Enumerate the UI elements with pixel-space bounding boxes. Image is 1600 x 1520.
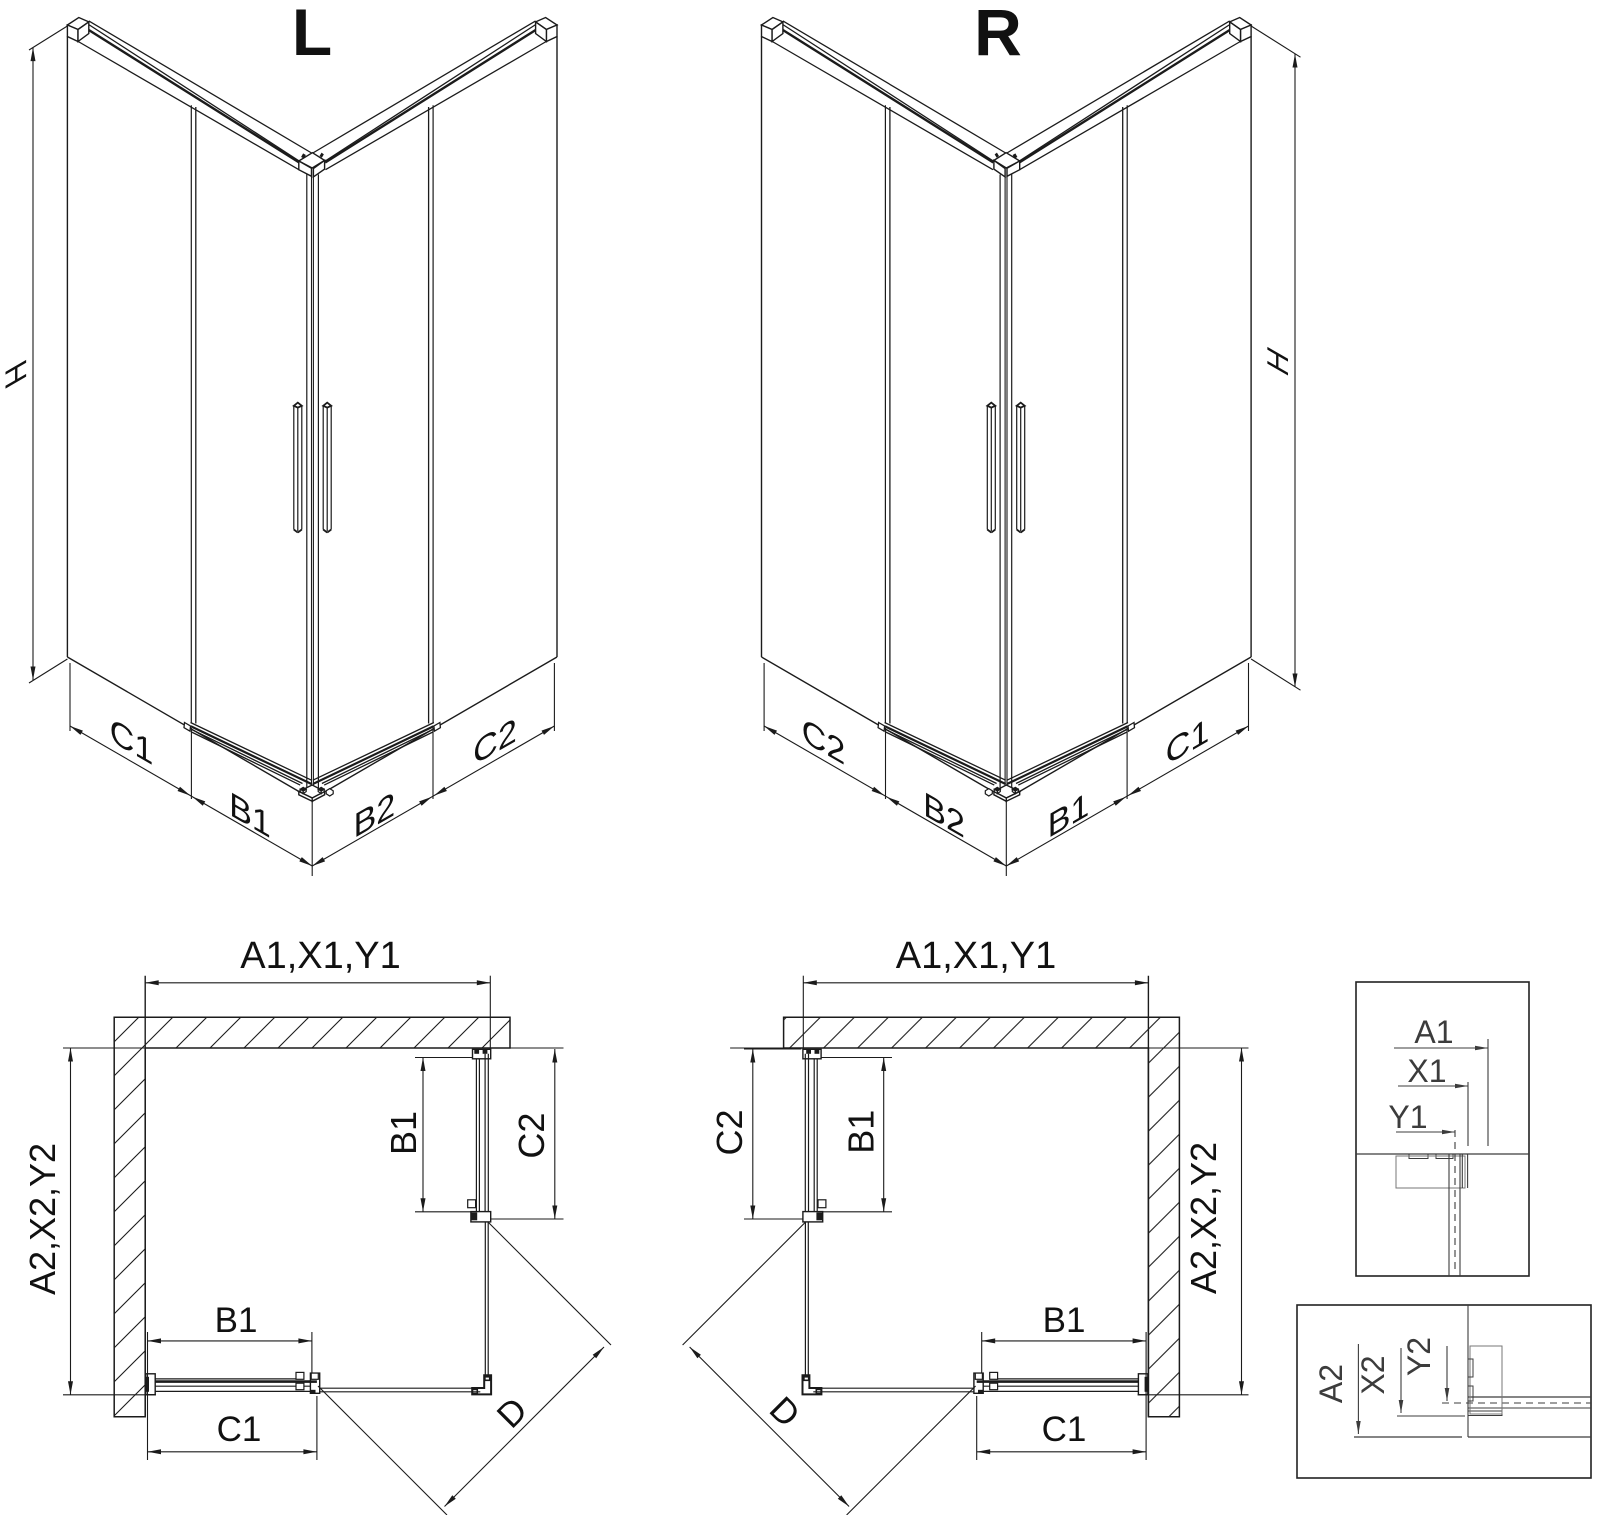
svg-text:Y1: Y1 bbox=[1388, 1099, 1427, 1135]
svg-text:A1,X1,Y1: A1,X1,Y1 bbox=[240, 935, 401, 977]
svg-text:A1,X1,Y1: A1,X1,Y1 bbox=[896, 935, 1057, 977]
svg-text:B1: B1 bbox=[1043, 1301, 1086, 1340]
svg-text:A2,X2,Y2: A2,X2,Y2 bbox=[22, 1143, 63, 1295]
svg-text:A2,X2,Y2: A2,X2,Y2 bbox=[1183, 1142, 1224, 1294]
svg-text:X1: X1 bbox=[1407, 1053, 1446, 1089]
svg-text:L: L bbox=[292, 0, 332, 69]
svg-text:B1: B1 bbox=[841, 1110, 882, 1154]
svg-text:Y2: Y2 bbox=[1401, 1337, 1437, 1376]
svg-text:C1: C1 bbox=[217, 1410, 262, 1449]
svg-text:C2: C2 bbox=[511, 1113, 552, 1159]
svg-text:A1: A1 bbox=[1414, 1014, 1453, 1050]
svg-text:C2: C2 bbox=[709, 1109, 750, 1155]
svg-text:C1: C1 bbox=[1042, 1410, 1087, 1449]
svg-text:B1: B1 bbox=[215, 1301, 258, 1340]
svg-text:B1: B1 bbox=[383, 1111, 424, 1155]
svg-text:R: R bbox=[974, 0, 1022, 69]
svg-text:X2: X2 bbox=[1355, 1355, 1391, 1394]
svg-text:A2: A2 bbox=[1313, 1364, 1349, 1403]
